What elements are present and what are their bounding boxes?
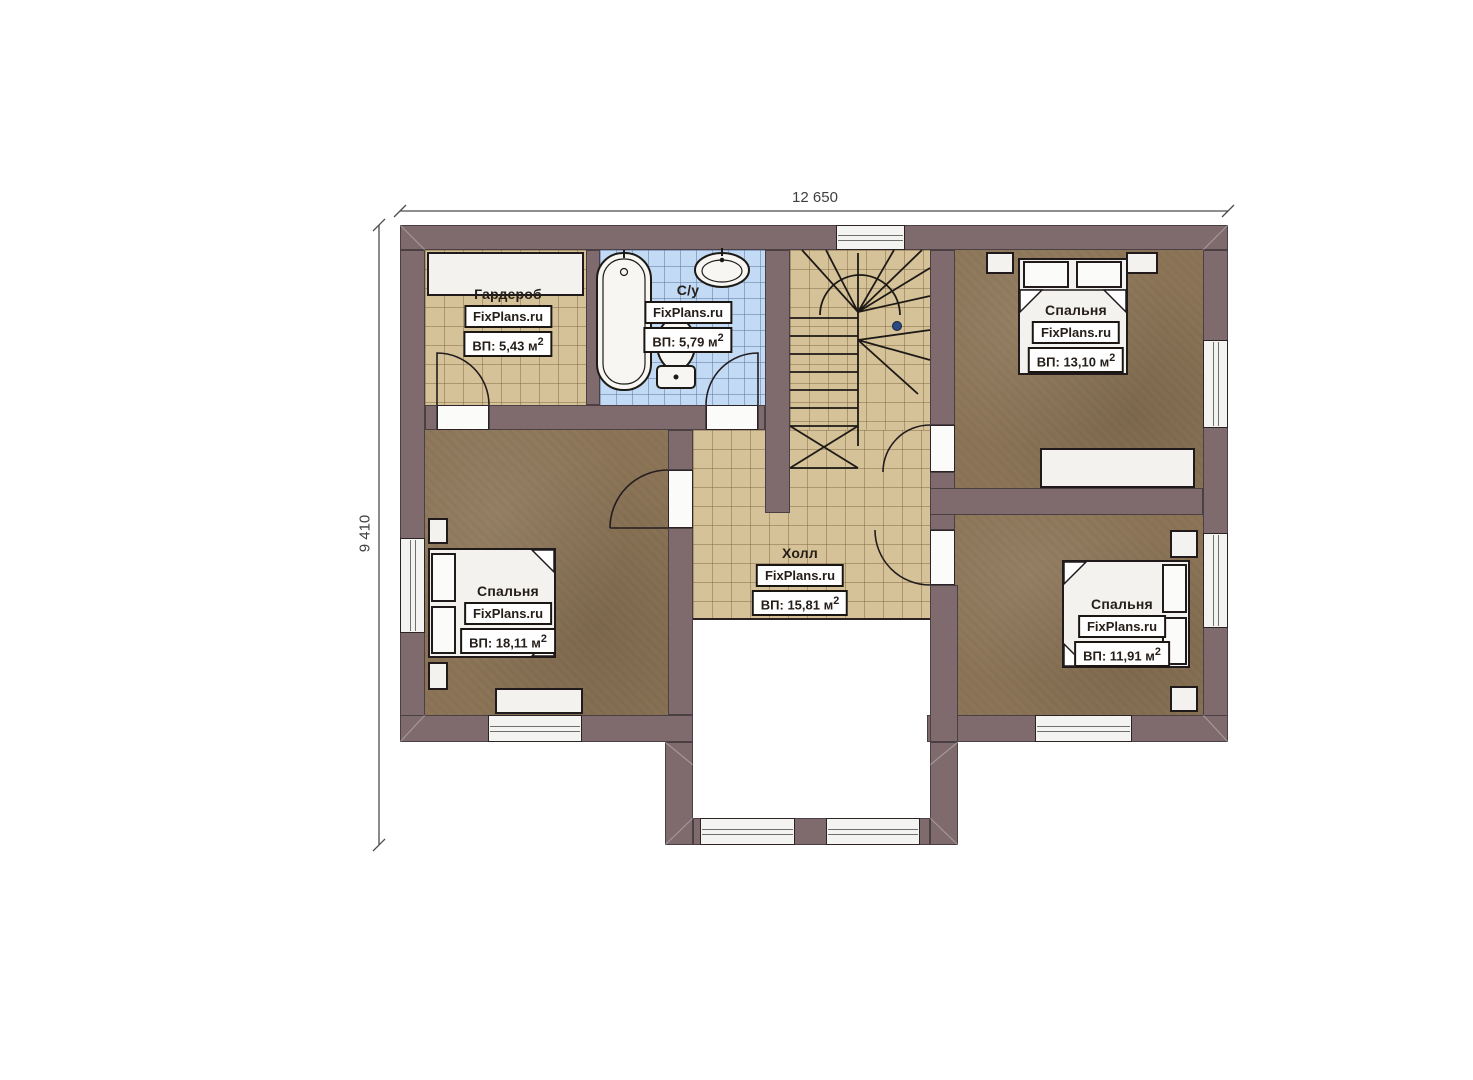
wall-below-wardrobe-a (425, 405, 437, 430)
wall-right (1203, 250, 1228, 742)
wall-top (400, 225, 1228, 250)
nightstand (1170, 686, 1198, 712)
pillow (431, 606, 456, 654)
room-name: С/у (677, 282, 699, 298)
wall-protrusion-right (930, 742, 958, 845)
dimension-width-label: 12 650 (780, 189, 850, 206)
nightstand (986, 252, 1014, 274)
room-label-wardrobe: Гардероб FixPlans.ru ВП: 5,43 м2 (463, 286, 552, 357)
nightstand (1170, 530, 1198, 558)
nightstand (428, 662, 448, 690)
nightstand (428, 518, 448, 544)
dresser-left (495, 688, 583, 714)
open-void-area (693, 620, 930, 818)
window-bottom-right (1035, 715, 1132, 742)
dimension-height-label: 9 410 (357, 499, 374, 569)
watermark-box: FixPlans.ru (464, 602, 552, 625)
room-label-bathroom: С/у FixPlans.ru ВП: 5,79 м2 (643, 282, 732, 353)
pillow (431, 553, 456, 602)
room-name: Спальня (477, 583, 539, 599)
room-name: Спальня (1091, 596, 1153, 612)
wall-left (400, 250, 425, 742)
area-box: ВП: 11,91 м2 (1074, 641, 1170, 667)
area-box: ВП: 15,81 м2 (752, 590, 848, 616)
wall-below-wardrobe-b (489, 405, 706, 430)
room-name: Холл (782, 545, 818, 561)
nightstand (1126, 252, 1158, 274)
window-top (836, 225, 905, 250)
window-protrusion-2 (826, 818, 920, 845)
window-protrusion-1 (700, 818, 795, 845)
area-box: ВП: 5,79 м2 (643, 327, 732, 353)
wall-bedroom-left-a (668, 430, 693, 470)
area-box: ВП: 18,11 м2 (460, 628, 556, 654)
door-opening-bedroom-left (668, 470, 693, 528)
room-label-bedroom-top-right: Спальня FixPlans.ru ВП: 13,10 м2 (1028, 302, 1124, 373)
door-opening-bathroom (706, 405, 758, 430)
window-left (400, 538, 425, 633)
wall-void-right (930, 585, 958, 742)
dresser-top-right (1040, 448, 1195, 488)
floor-plan-canvas: Гардероб FixPlans.ru ВП: 5,43 м2 С/у Fix… (0, 0, 1473, 1080)
window-bottom-left (488, 715, 582, 742)
wall-wardrobe-bathroom (586, 250, 600, 405)
door-opening-bedroom-tr (930, 425, 955, 472)
watermark-box: FixPlans.ru (1078, 615, 1166, 638)
room-name: Гардероб (474, 286, 542, 302)
pillow (1023, 261, 1069, 288)
watermark-box: FixPlans.ru (644, 301, 732, 324)
door-opening-wardrobe (437, 405, 489, 430)
room-label-hall: Холл FixPlans.ru ВП: 15,81 м2 (752, 545, 848, 616)
watermark-box: FixPlans.ru (464, 305, 552, 328)
door-opening-bedroom-br (930, 530, 955, 585)
watermark-box: FixPlans.ru (756, 564, 844, 587)
window-right-bottom (1203, 533, 1228, 628)
room-label-bedroom-bottom-right: Спальня FixPlans.ru ВП: 11,91 м2 (1074, 596, 1170, 667)
wall-right-rooms-divider (930, 488, 1203, 515)
wall-stair-left (765, 250, 790, 513)
wall-below-bathroom-c (758, 405, 765, 430)
void-edge-line (693, 618, 930, 620)
room-name: Спальня (1045, 302, 1107, 318)
watermark-box: FixPlans.ru (1032, 321, 1120, 344)
area-box: ВП: 13,10 м2 (1028, 347, 1124, 373)
pillow (1076, 261, 1122, 288)
wall-protrusion-left (665, 742, 693, 845)
area-box: ВП: 5,43 м2 (463, 331, 552, 357)
wall-stair-right-upper (930, 250, 955, 425)
window-right-top (1203, 340, 1228, 428)
wall-bedroom-left-b (668, 528, 693, 715)
room-label-bedroom-left: Спальня FixPlans.ru ВП: 18,11 м2 (460, 583, 556, 654)
